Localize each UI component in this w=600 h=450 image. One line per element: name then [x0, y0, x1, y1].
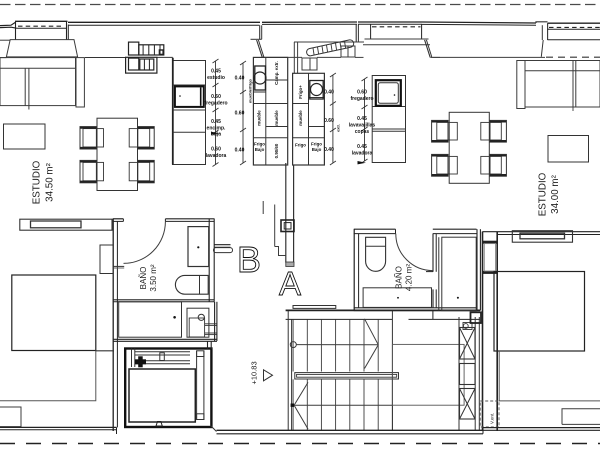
svg-text:copas: copas [355, 129, 370, 135]
svg-text:fregadero: fregadero [204, 101, 227, 107]
svg-text:4.20 m²: 4.20 m² [405, 264, 414, 291]
svg-text:0.45: 0.45 [211, 119, 221, 125]
svg-text:+10.83: +10.83 [250, 361, 259, 384]
svg-text:extr.: extr. [337, 124, 341, 132]
svg-text:estudio: estudio [207, 75, 225, 81]
svg-text:Bajo: Bajo [312, 147, 322, 152]
svg-text:lavadora: lavadora [352, 151, 373, 157]
svg-text:0.60: 0.60 [235, 111, 245, 117]
svg-text:0.40: 0.40 [235, 76, 245, 82]
svg-text:mueble/frigo: mueble/frigo [248, 78, 253, 103]
svg-text:mueble: mueble [257, 110, 262, 126]
svg-text:ESTUDIO: ESTUDIO [32, 160, 43, 204]
svg-text:fregadero: fregadero [350, 96, 373, 102]
svg-text:V.ent.: V.ent. [490, 413, 495, 424]
svg-text:0.45: 0.45 [211, 69, 221, 75]
svg-text:lavavajillas: lavavajillas [349, 123, 376, 129]
svg-text:3.50 m²: 3.50 m² [149, 264, 158, 291]
svg-text:0.45: 0.45 [357, 116, 367, 122]
svg-text:Frigo: Frigo [311, 142, 322, 147]
svg-text:34.50 m²: 34.50 m² [45, 162, 56, 201]
svg-text:B: B [237, 239, 261, 280]
svg-text:BAÑO: BAÑO [395, 266, 404, 289]
svg-text:0.60: 0.60 [324, 118, 334, 124]
svg-text:mueble: mueble [298, 110, 303, 126]
svg-text:0.60: 0.60 [211, 147, 221, 153]
svg-text:Frigo: Frigo [295, 143, 306, 148]
svg-text:Frigo: Frigo [254, 142, 265, 147]
svg-text:Camp. extr.: Camp. extr. [274, 61, 279, 85]
svg-text:0.40: 0.40 [324, 90, 334, 96]
svg-text:0.90/60: 0.90/60 [274, 143, 279, 158]
svg-text:BAÑO: BAÑO [139, 267, 148, 290]
svg-text:34.00 m²: 34.00 m² [550, 174, 561, 213]
svg-text:A: A [279, 265, 301, 302]
svg-text:0.60: 0.60 [357, 90, 367, 96]
svg-text:0.40: 0.40 [235, 148, 245, 154]
svg-text:Bajo: Bajo [255, 147, 265, 152]
svg-text:0.45: 0.45 [357, 144, 367, 150]
svg-text:0.40: 0.40 [324, 147, 334, 153]
svg-text:mueble: mueble [274, 110, 279, 126]
svg-text:lavadora: lavadora [206, 153, 227, 159]
svg-text:0.60: 0.60 [211, 94, 221, 100]
svg-text:ESTUDIO: ESTUDIO [538, 172, 549, 216]
svg-text:Frigo+: Frigo+ [298, 85, 303, 99]
